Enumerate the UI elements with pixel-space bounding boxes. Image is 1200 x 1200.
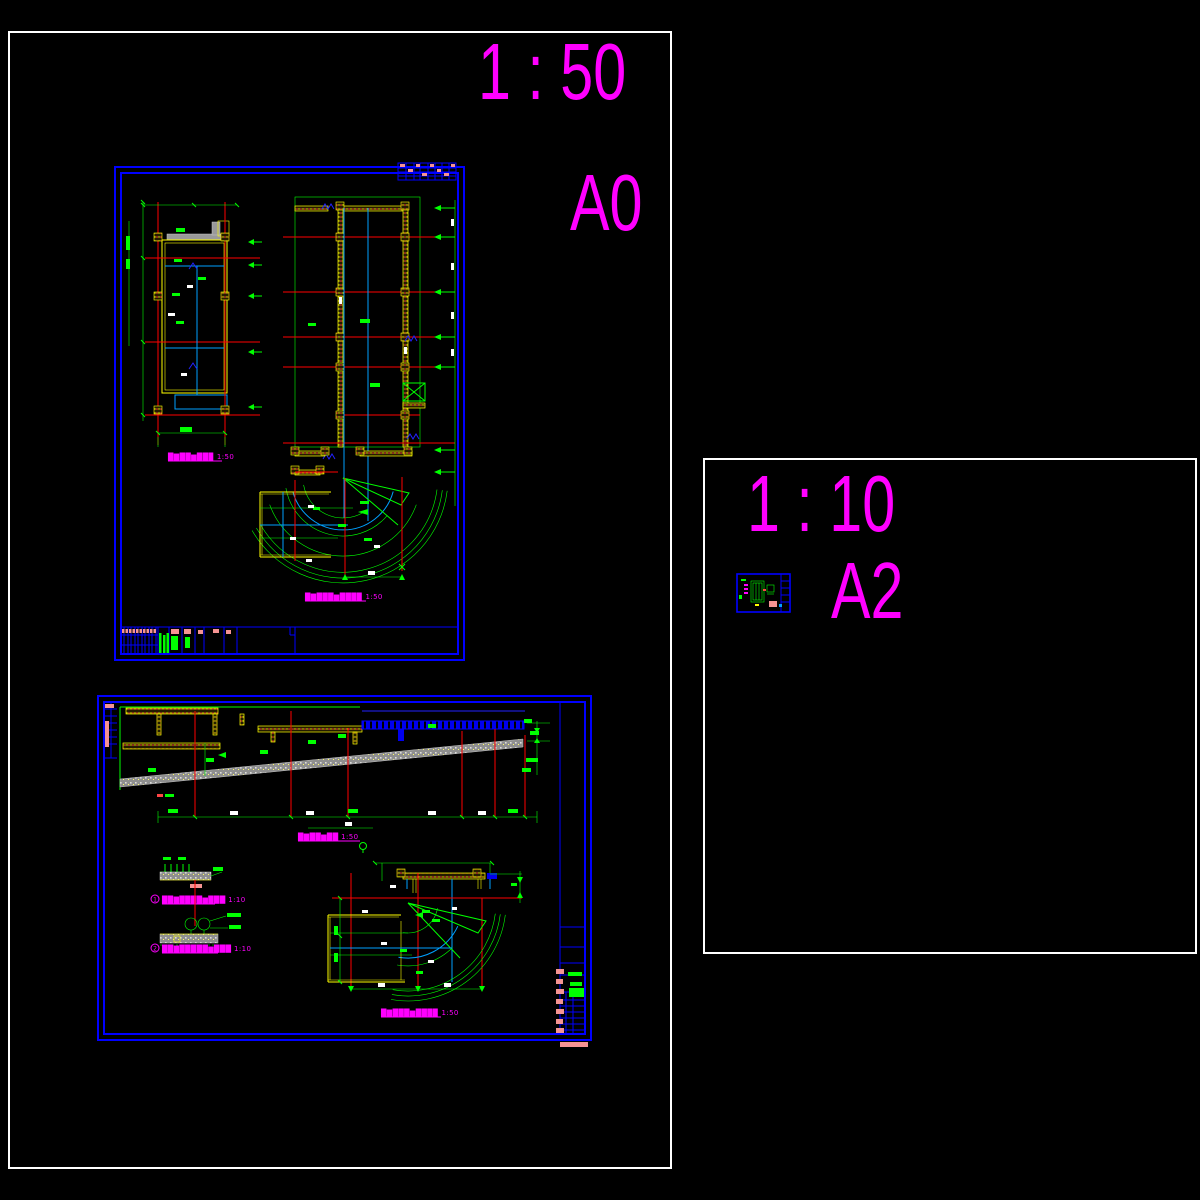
section-title: █▇██▆██ 1:50 bbox=[297, 832, 358, 841]
plan-right-title: █▇███▆███▉ 1:50 bbox=[304, 592, 383, 601]
dim-arrows-left-plan bbox=[248, 239, 262, 410]
fan-plan-2: █▇███▆███▉ 1:50 bbox=[328, 861, 523, 1017]
title-block-column bbox=[556, 702, 588, 1047]
plan-right bbox=[283, 197, 455, 521]
detail-1: 1 ██▇████▆███ 1:10 bbox=[151, 857, 246, 904]
detail-2: 2 ██▇█████▆███ 1:10 bbox=[151, 913, 251, 953]
corner-table bbox=[104, 702, 117, 758]
revision-table bbox=[398, 163, 456, 180]
plan-left: █▇██▆██▉ 1:50 bbox=[126, 200, 262, 461]
fan-plan-1: █▇███▆███▉ 1:50 bbox=[252, 477, 447, 601]
detail-1-title: ██▇████▆███ 1:10 bbox=[161, 895, 246, 904]
mini-detail-sheet bbox=[737, 574, 790, 612]
drawing-frame-2: █▇██▆██ 1:50 1 ██▇████▆███ 1:10 bbox=[98, 696, 591, 1047]
size-label-a0: A0 bbox=[570, 163, 642, 243]
plan-left-title: █▇██▆██▉ 1:50 bbox=[167, 452, 234, 461]
scale-label-a2: 1 : 10 bbox=[747, 464, 895, 544]
drawing-frame-1: █▇██▆██▉ 1:50 bbox=[115, 163, 464, 660]
detail-1-number: 1 bbox=[153, 897, 157, 904]
detail-2-title: ██▇█████▆███ 1:10 bbox=[161, 944, 251, 953]
title-block-strip bbox=[121, 627, 458, 654]
fan-plan-title: █▇███▆███▉ 1:50 bbox=[380, 1008, 459, 1017]
cad-canvas: █▇██▆██▉ 1:50 bbox=[0, 0, 1200, 1200]
detail-2-number: 2 bbox=[153, 946, 157, 953]
size-label-a2: A2 bbox=[831, 551, 903, 631]
scale-label-a0: 1 : 50 bbox=[478, 32, 626, 112]
ramp-section: █▇██▆██ 1:50 bbox=[120, 707, 550, 853]
